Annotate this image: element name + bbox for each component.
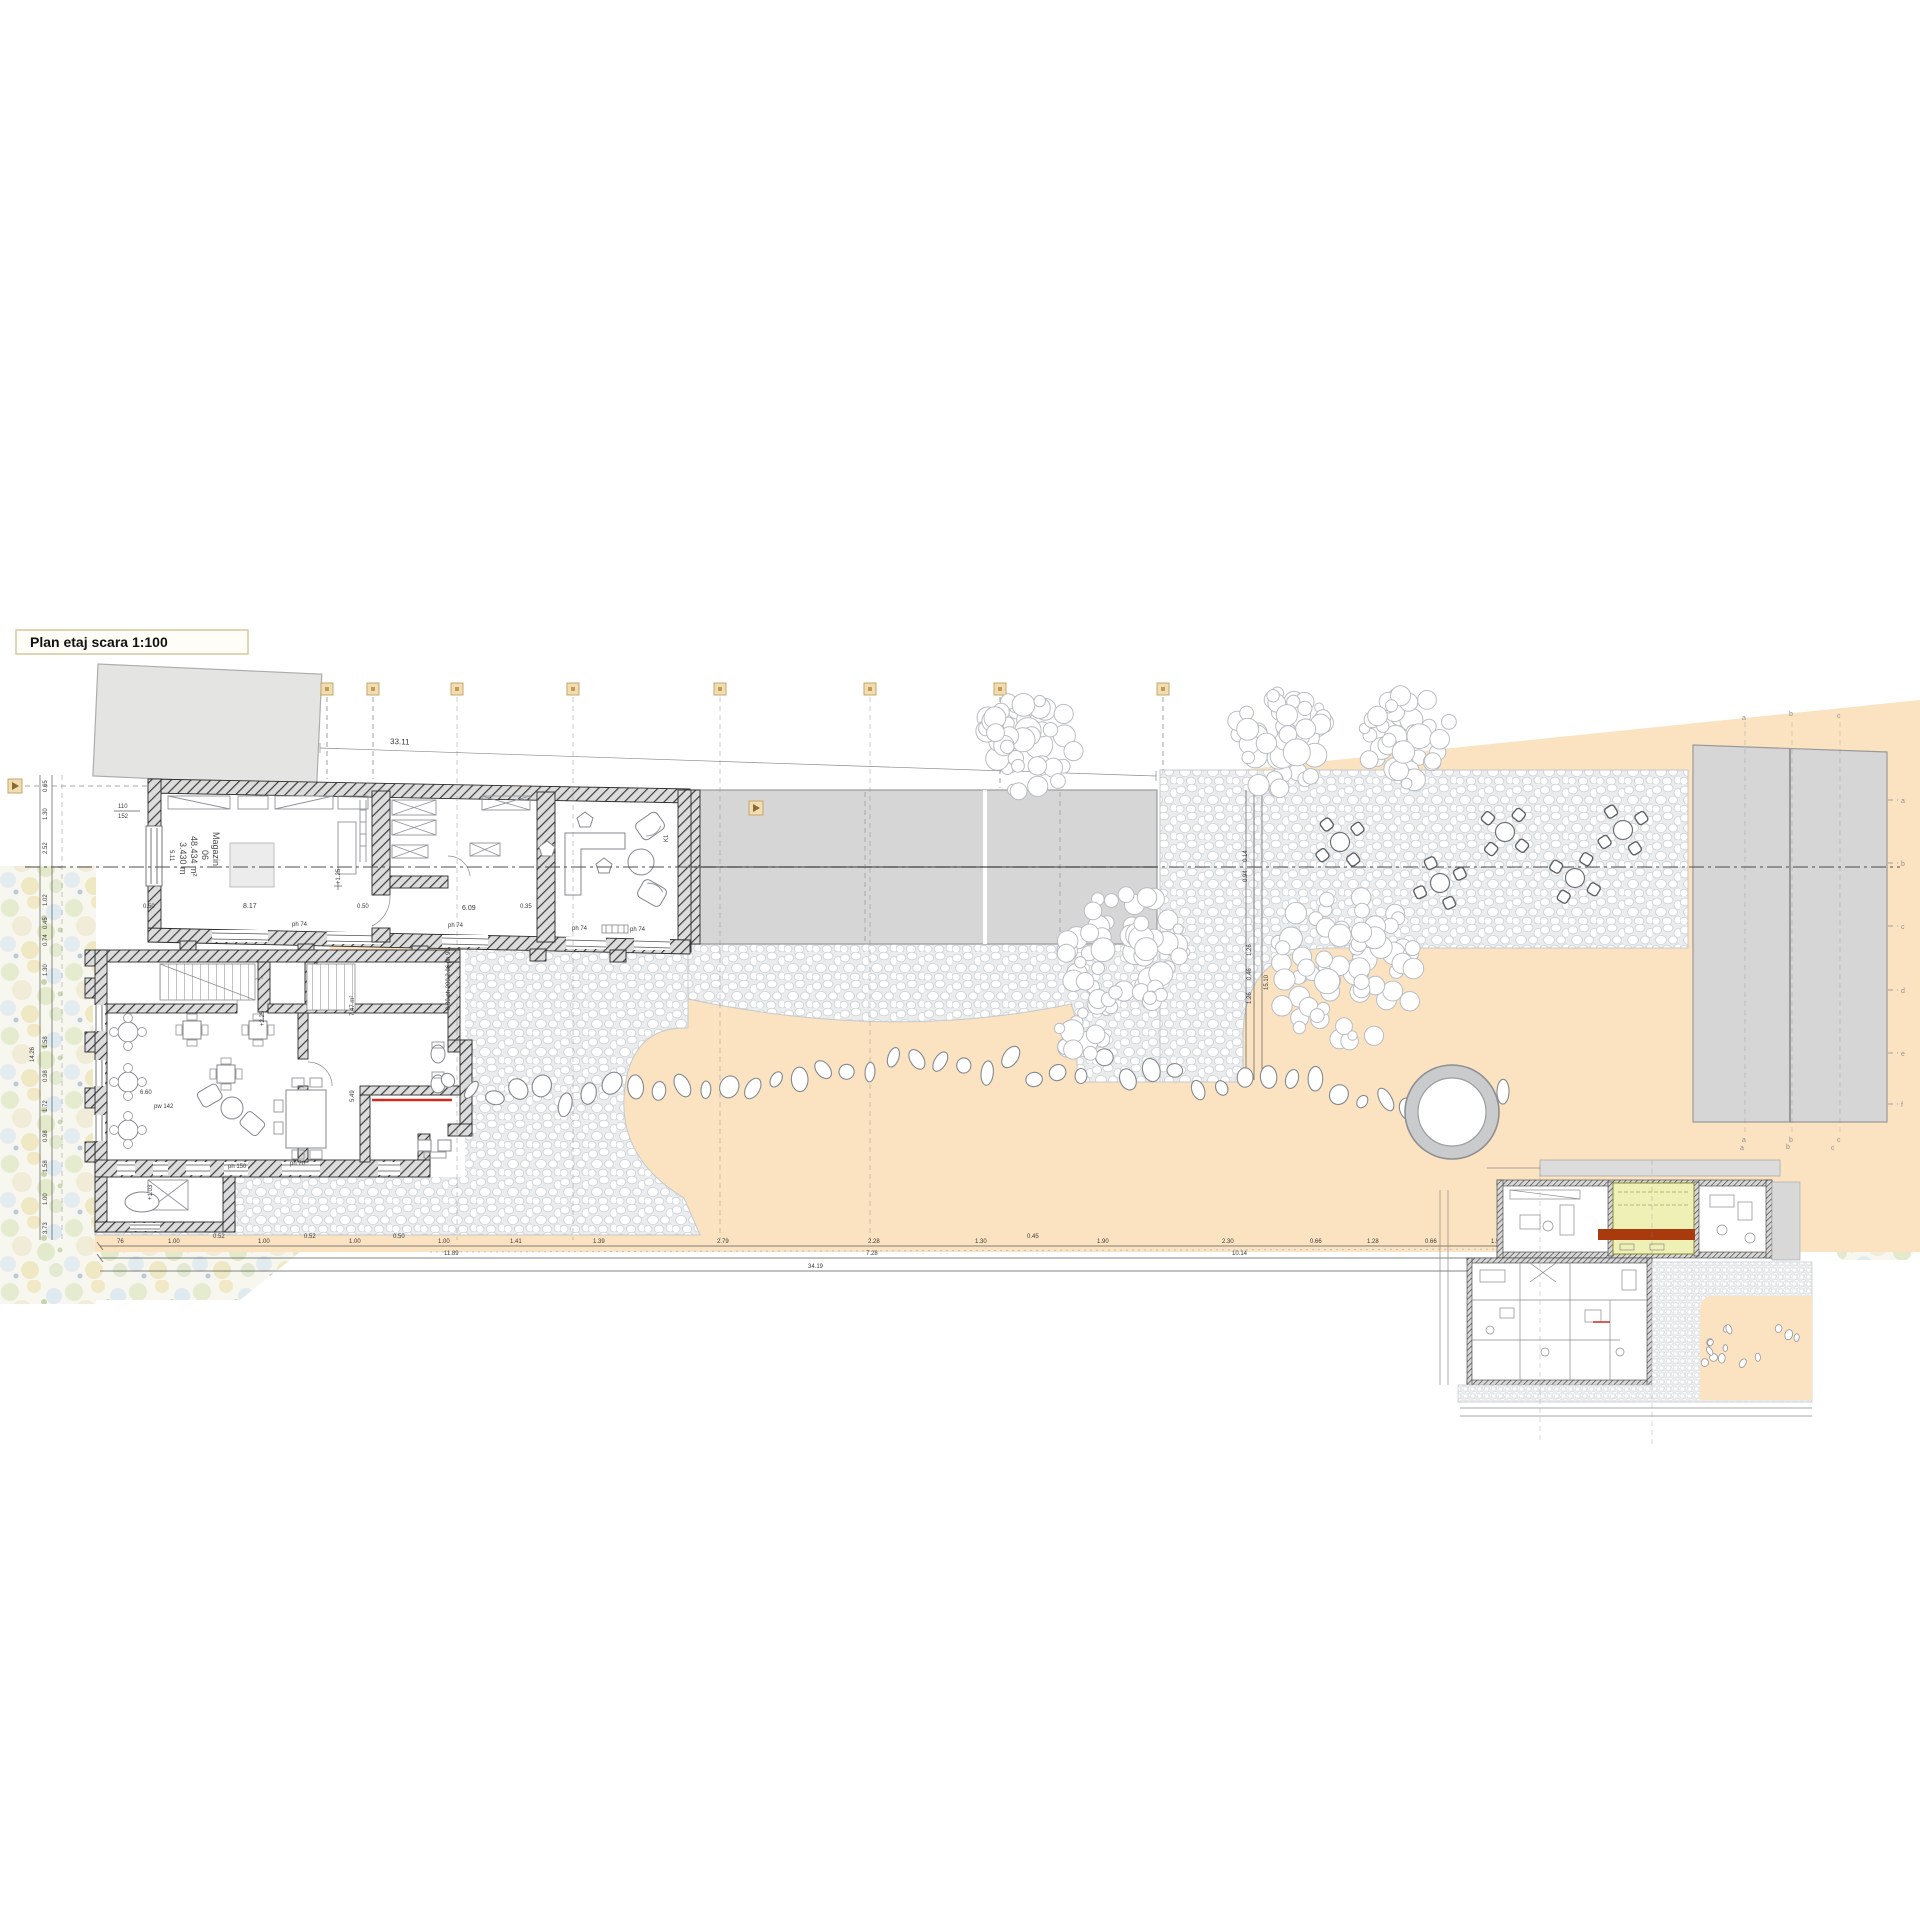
tree-circle (1057, 944, 1075, 962)
path-s1: 0.14 (1243, 850, 1249, 862)
tree-circle (1298, 701, 1312, 715)
svg-text:1.58: 1.58 (43, 1036, 49, 1048)
svg-text:a: a (1901, 798, 1905, 805)
tree-circle (1320, 892, 1335, 907)
dim-top-total: 33.11 (390, 737, 410, 747)
svg-text:0.52: 0.52 (213, 1234, 225, 1240)
tree-circle (1143, 991, 1156, 1004)
svg-text:c: c (1837, 713, 1841, 720)
tree-circle (1329, 924, 1352, 947)
stepping-stone (1308, 1066, 1323, 1091)
right-building-roof (1693, 745, 1887, 1122)
tree-circle (1081, 924, 1099, 942)
junction-dims: 0.30 ph 200 2.06 ph 90 (446, 948, 452, 1010)
tree-circle (1171, 948, 1188, 965)
window-label: ph 74 (448, 923, 464, 929)
svg-text:1.00: 1.00 (438, 1239, 450, 1245)
tree-circle (1382, 733, 1396, 747)
svg-text:1.30: 1.30 (975, 1239, 987, 1245)
door-size-bottom: 152 (118, 814, 129, 820)
stepping-stone (956, 1058, 971, 1074)
svg-text:f: f (1901, 1102, 1903, 1109)
tree-circle (1274, 969, 1295, 990)
tree-circle (1118, 887, 1134, 903)
tree-circle (1083, 1046, 1097, 1060)
svg-text:a: a (1740, 1145, 1744, 1152)
svg-text:Magazin: Magazin (211, 832, 221, 866)
tree-circle (1091, 938, 1115, 962)
tree-circle (1270, 779, 1289, 798)
tree-circle (1405, 941, 1420, 956)
level-mark: +1.25 (336, 868, 342, 884)
tree-circle (1076, 973, 1094, 991)
stepping-stone (701, 1081, 712, 1099)
svg-text:1.30: 1.30 (43, 964, 49, 976)
tree-circle (1084, 902, 1102, 920)
dim-roomb-width: 6.09 (462, 905, 476, 912)
tree-circle (1298, 959, 1315, 976)
tree-circle (1086, 1025, 1105, 1044)
tree-circle (1054, 704, 1073, 723)
svg-text:1.39: 1.39 (593, 1239, 605, 1245)
tree-circle (1283, 739, 1310, 766)
label-pw142: pw 142 (154, 1104, 174, 1110)
svg-text:3.430 m: 3.430 m (178, 842, 188, 875)
tree-circle (1272, 996, 1292, 1016)
path-total: 15.10 (1264, 974, 1270, 990)
dim-magazin-left: 0.50 (143, 904, 155, 910)
svg-text:0.98: 0.98 (43, 1070, 49, 1082)
tree-circle (1276, 705, 1297, 726)
dim-roomb-gap: 0.35 (520, 904, 532, 910)
tree-circle (1383, 981, 1403, 1001)
path-s2: 0.94 (1243, 870, 1249, 882)
svg-text:b: b (1789, 1137, 1793, 1144)
tree-circle (1028, 757, 1046, 775)
office-label: K1 (664, 834, 670, 842)
tree-circle (1001, 740, 1014, 753)
tree-circle (1389, 761, 1409, 781)
svg-text:b: b (1901, 861, 1905, 868)
tree-circle (1028, 776, 1048, 796)
tree-circle (1248, 775, 1269, 796)
svg-text:2.52: 2.52 (43, 842, 49, 854)
svg-text:0.45: 0.45 (1027, 1234, 1039, 1240)
tree-circle (1392, 741, 1414, 763)
tree-circle (1012, 694, 1035, 717)
svg-text:5.11: 5.11 (168, 850, 174, 862)
tree-circle (1354, 974, 1369, 989)
svg-text:b: b (1789, 711, 1793, 718)
tree-circle (1109, 986, 1122, 999)
tree-circle (1360, 751, 1378, 769)
title-box: Plan etaj scara 1:100 (16, 630, 248, 654)
bottom-total: 34.19 (808, 1264, 824, 1270)
page-title: Plan etaj scara 1:100 (30, 634, 168, 650)
svg-text:3.73: 3.73 (43, 1222, 49, 1234)
tree-circle (1137, 888, 1156, 907)
svg-text:1.00: 1.00 (43, 1193, 49, 1205)
svg-text:c: c (1901, 924, 1905, 931)
tree-circle (1256, 733, 1276, 753)
tree-circle (1092, 962, 1105, 975)
svg-text:06: 06 (200, 850, 210, 860)
svg-text:0.98: 0.98 (43, 1130, 49, 1142)
tree-circle (1310, 1009, 1324, 1023)
tree-circle (1010, 783, 1027, 800)
svg-text:1.00: 1.00 (349, 1239, 361, 1245)
stepping-stone (1497, 1079, 1509, 1104)
tree-circle (1296, 719, 1316, 739)
round-well (1405, 1065, 1499, 1159)
svg-text:1.28: 1.28 (1367, 1239, 1379, 1245)
label-ph150: ph 150 (228, 1164, 247, 1170)
left-total: 14.26 (30, 1046, 36, 1062)
stepping-stone (1237, 1068, 1253, 1088)
tree-circle (1173, 924, 1183, 934)
highlighted-room (1613, 1183, 1694, 1254)
inset-beige (1700, 1296, 1812, 1400)
tree-circle (1267, 690, 1279, 702)
tree-circle (1105, 894, 1119, 908)
tree-circle (1293, 1021, 1305, 1033)
svg-text:76: 76 (117, 1239, 124, 1245)
svg-text:2.79: 2.79 (717, 1239, 729, 1245)
svg-text:b: b (1786, 1144, 1790, 1151)
tree-circle (1054, 1023, 1064, 1033)
svg-text:0.74: 0.74 (43, 934, 49, 946)
svg-text:0.65: 0.65 (43, 780, 49, 792)
tree-circle (1430, 730, 1450, 750)
tree-circle (1401, 778, 1412, 789)
tree-circle (1400, 992, 1419, 1011)
tree-circle (1012, 759, 1025, 772)
svg-text:0.52: 0.52 (304, 1234, 316, 1240)
tree-circle (1386, 700, 1398, 712)
svg-text:a: a (1742, 1137, 1746, 1144)
tree-circle (1442, 715, 1457, 730)
svg-text:c: c (1837, 1137, 1841, 1144)
tree-circle (1043, 723, 1057, 737)
tree-circle (1135, 938, 1158, 961)
tree-circle (1242, 751, 1255, 764)
level-225: +2.25 (260, 1010, 266, 1026)
svg-text:2.28: 2.28 (868, 1239, 880, 1245)
dim-magazin-width: 8.17 (243, 903, 257, 910)
inset-pebble (1718, 1353, 1725, 1363)
window-label: ph 74 (572, 926, 588, 932)
tree-circle (1315, 969, 1340, 994)
svg-text:1.26: 1.26 (1247, 944, 1253, 956)
bottom-sub3: 10.14 (1232, 1251, 1248, 1257)
tree-circle (1316, 951, 1333, 968)
tree-circle (1237, 718, 1259, 740)
upper-building: Magazin 06 48.434 m² 3.430 m 5.11 8.17 0… (114, 779, 691, 962)
svg-text:1.30: 1.30 (43, 808, 49, 820)
window-label: ph 74 (292, 922, 308, 928)
tree-circle (1051, 774, 1066, 789)
dim-magazin-right: 0.50 (357, 904, 369, 910)
bottom-sub2: 7.28 (866, 1251, 878, 1257)
dim-660: 6.60 (140, 1090, 152, 1096)
tree-circle (1078, 1008, 1088, 1018)
svg-text:2.30: 2.30 (1222, 1239, 1234, 1245)
tree-circle (1134, 916, 1149, 931)
inset-pebble (1794, 1333, 1800, 1341)
tree-circle (1064, 742, 1083, 761)
svg-text:d: d (1901, 988, 1905, 995)
svg-text:1.72: 1.72 (43, 1100, 49, 1112)
tree-circle (1425, 753, 1441, 769)
tree-circle (987, 724, 1005, 742)
svg-text:0.50: 0.50 (393, 1234, 405, 1240)
svg-text:0.45: 0.45 (43, 917, 49, 929)
door-size-top: 110 (118, 804, 128, 810)
svg-text:48.434 m²: 48.434 m² (189, 836, 199, 877)
adjacent-roof-top-left (93, 664, 322, 786)
window-label: ph 74 (630, 927, 646, 933)
svg-text:c: c (1831, 1145, 1835, 1152)
stepping-stone (791, 1067, 808, 1092)
tree-circle (1075, 957, 1086, 968)
svg-text:e: e (1901, 1051, 1905, 1058)
bottom-sub1: 11.89 (444, 1251, 459, 1257)
stepping-stone (1075, 1068, 1087, 1083)
svg-text:1.58: 1.58 (43, 1160, 49, 1172)
tree-circle (1348, 1031, 1357, 1040)
svg-text:1.41: 1.41 (510, 1239, 522, 1245)
tree-circle (1276, 941, 1290, 955)
svg-text:a: a (1742, 715, 1746, 722)
area-747: 7.47 m² (350, 996, 356, 1016)
svg-text:1.00: 1.00 (258, 1239, 270, 1245)
level-103: +1.03 (148, 1184, 154, 1200)
red-highlight-bar (1598, 1229, 1695, 1240)
tree-circle (1351, 922, 1371, 942)
inset-key-plan: a b c (1440, 1144, 1835, 1445)
tree-circle (1418, 691, 1437, 710)
tree-circle (1403, 958, 1424, 979)
tree-circle (1285, 903, 1306, 924)
tree-circle (1303, 769, 1319, 785)
svg-text:1.26: 1.26 (1247, 992, 1253, 1004)
inset-pebble (1755, 1353, 1761, 1362)
tree-circle (1355, 903, 1370, 918)
svg-text:1.90: 1.90 (1097, 1239, 1109, 1245)
svg-text:1.00: 1.00 (168, 1239, 180, 1245)
svg-text:0.66: 0.66 (1310, 1239, 1322, 1245)
tree-circle (1368, 706, 1388, 726)
tree-circle (1364, 1026, 1383, 1045)
tree-circle (1064, 1040, 1083, 1059)
svg-text:0.66: 0.66 (1425, 1239, 1437, 1245)
svg-text:1.02: 1.02 (43, 894, 49, 906)
floor-plan-canvas: Magazin 06 48.434 m² 3.430 m 5.11 8.17 0… (0, 0, 1920, 1920)
dim-549: 5.49 (350, 1090, 356, 1102)
tree-circle (1034, 695, 1045, 706)
svg-text:0.46: 0.46 (1247, 968, 1253, 980)
inset-pebble (1723, 1345, 1728, 1352)
label-ph70: ph 70 (290, 1161, 306, 1167)
